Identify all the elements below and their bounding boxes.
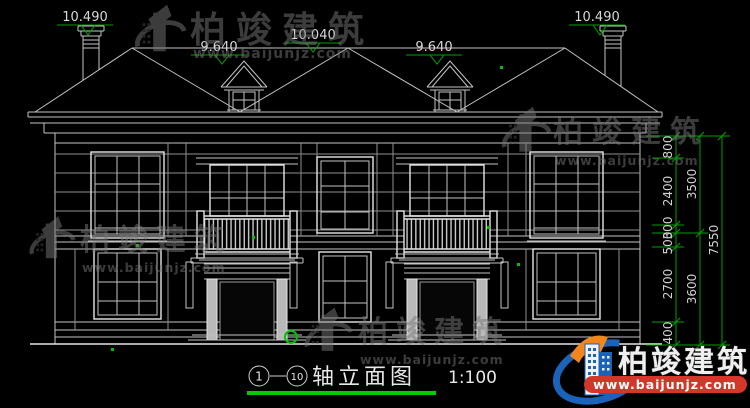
- logo-url: www.baijunjz.com: [593, 377, 737, 392]
- drawing-title: 轴立面图: [312, 365, 416, 390]
- watermark-url: www.baijunjz.com: [82, 260, 226, 275]
- title-underline: [247, 391, 436, 395]
- watermark-brand: 柏竣建筑: [553, 115, 709, 150]
- logo-brand: 柏竣建筑: [618, 345, 750, 380]
- axis-to: 10: [291, 372, 304, 383]
- dim-inner-400: 400: [661, 322, 675, 345]
- marker-value: 10.490: [62, 10, 108, 25]
- drawing-scale: 1:100: [448, 368, 497, 388]
- axis-from: 1: [255, 370, 263, 384]
- watermark-brand: 柏竣建筑: [358, 315, 510, 350]
- watermark-brand: 柏竣建筑: [80, 223, 232, 258]
- elevation-drawing: 10.490 9.640 10.040 9.640 10.490 800: [0, 0, 750, 408]
- watermark-brand: 柏竣建筑: [190, 10, 374, 51]
- dim-inner-500: 500: [661, 232, 675, 255]
- dim-inner-2700: 2700: [661, 269, 675, 300]
- dim-inner-2400: 2400: [661, 176, 675, 207]
- dim-middle-3600: 3600: [685, 274, 699, 305]
- cad-elevation-screenshot: 10.490 9.640 10.040 9.640 10.490 800: [0, 0, 750, 408]
- watermark-url: www.baijunjz.com: [193, 46, 352, 62]
- dim-outer-7550: 7550: [707, 225, 721, 256]
- watermark-url: www.baijunjz.com: [555, 153, 699, 168]
- marker-value: 9.640: [415, 40, 452, 55]
- marker-value: 10.490: [574, 10, 620, 25]
- dim-middle-3500: 3500: [685, 169, 699, 200]
